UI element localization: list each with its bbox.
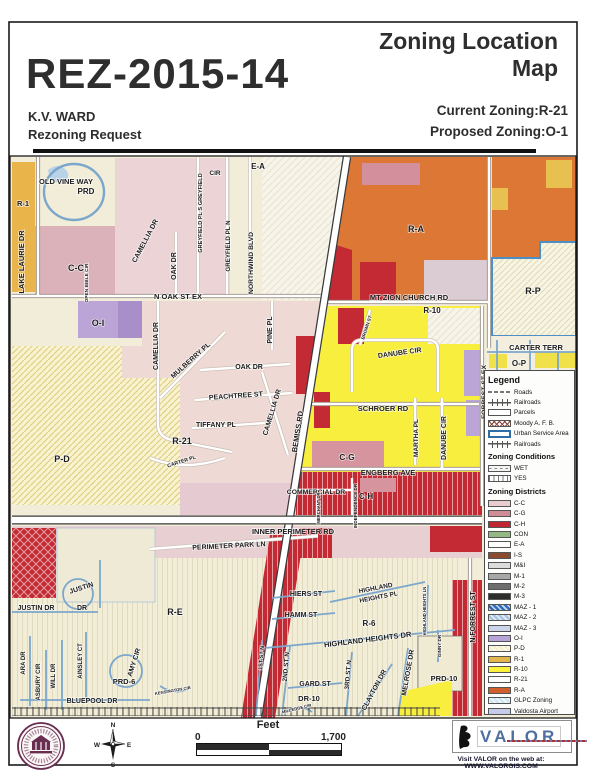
street-label: DR (77, 605, 87, 612)
legend-item-label: C-C (514, 500, 525, 507)
street-label: OAK DR (171, 252, 178, 280)
request-type: Rezoning Request (28, 126, 141, 144)
street-label: WILL DR (51, 663, 57, 689)
legend-item: Roads (488, 387, 572, 397)
compass-west-label: W (94, 742, 101, 749)
street-label: CAMELLIA DR (153, 322, 160, 370)
zone-area-label: R-10 (423, 306, 441, 315)
compass-rose-icon: N S W E (94, 722, 132, 769)
region-pink-west (180, 483, 296, 515)
legend-swatch (488, 531, 511, 538)
street-label: GREYFIELD PL S GREYFIELD (198, 173, 204, 252)
legend-swatch (488, 676, 511, 683)
street-label: SCHROER RD (358, 404, 409, 413)
legend-swatch (488, 500, 511, 507)
legend-district-item: C-H (488, 519, 572, 529)
legend-condition-item: WET (488, 463, 572, 473)
legend-district-item: CON (488, 529, 572, 539)
zone-area-label: P-D (54, 454, 70, 464)
region-yellow-patch2 (492, 188, 508, 210)
legend-item-label: WET (514, 465, 528, 472)
valor-wordmark: VALOR (477, 726, 561, 747)
legend-districts-title: Zoning Districts (488, 487, 572, 496)
legend-swatch (488, 697, 511, 704)
zoning-info-block: Current Zoning:R-21 Proposed Zoning:O-1 (370, 101, 568, 143)
county-seal-icon (18, 723, 64, 769)
legend-item-label: Roads (514, 389, 532, 396)
street-label: OAK DR (235, 364, 263, 371)
region-o-i-dark (118, 301, 142, 338)
zone-area-label: C-H (359, 492, 373, 501)
zone-area-label: E-A (251, 162, 265, 171)
legend-item: Urban Service Area (488, 429, 572, 439)
region-c-h-e2 (314, 392, 330, 428)
street-label: BLUEPOOL DR (67, 698, 118, 705)
compass-east-label: E (127, 742, 132, 749)
legend-item: Railroads (488, 439, 572, 449)
legend-item-label: O-I (514, 635, 523, 642)
legend-condition-item: YES (488, 474, 572, 484)
legend-item-label: P-D (514, 645, 525, 652)
street-label: NORTHWIND BLVD (248, 232, 255, 294)
legend-item-label: GLPC Zoning (514, 697, 552, 704)
region-wet (12, 528, 56, 598)
scale-unit-label: Feet (190, 719, 346, 731)
street-label: PINE PL (267, 316, 274, 344)
street-label: CARTER TERR (509, 343, 563, 352)
legend-item-label: Valdosta Airport (514, 708, 558, 715)
street-label: TIFFANY PL (196, 422, 237, 429)
legend-item-label: R-10 (514, 666, 528, 673)
legend-item-label: C-H (514, 521, 525, 528)
region-c-h-s (430, 526, 482, 552)
scale-cell (269, 750, 341, 756)
street-label: MERCHANT DR (316, 492, 321, 523)
legend-item-label: M-2 (514, 583, 525, 590)
legend-district-item: C-C (488, 498, 572, 508)
zone-area-label: O-I (92, 318, 105, 328)
legend-district-item: R-1 (488, 654, 572, 664)
legend-item-label: E-A (514, 541, 525, 548)
legend-item-label: MAZ - 1 (514, 604, 536, 611)
legend-district-item: MAZ - 3 (488, 623, 572, 633)
street-label: HAMM ST (285, 612, 318, 619)
legend-swatch (488, 409, 511, 416)
street-label: AINSLEY CT (78, 643, 84, 679)
compass-north-label: N (111, 722, 116, 729)
street-label: HIERS ST (290, 591, 323, 598)
legend-swatch (488, 552, 511, 559)
legend-item: Moody A. F. B. (488, 418, 572, 428)
legend-swatch (488, 510, 511, 517)
scanned-zoning-map-page: OLD VINE WAYLAKE LAURIE DROPEN BIBLE CIR… (0, 0, 600, 776)
zone-area-label: R-21 (172, 436, 192, 446)
zone-area-label: R-6 (363, 619, 376, 628)
zone-area-label: C-G (339, 452, 355, 462)
valor-glyph-icon (457, 724, 473, 750)
street-label: INNER PERIMETER RD (252, 527, 335, 536)
street-label: OLD VINE WAY (39, 177, 93, 186)
legend-swatch (488, 593, 511, 600)
legend-item-label: C-G (514, 510, 526, 517)
region-c-g-patch (360, 478, 396, 492)
street-label: GREYFIELD PL N (225, 220, 232, 272)
scale-numbers: 0 1,700 (190, 731, 346, 743)
street-label: MT ZION CHURCH RD (370, 293, 449, 302)
street-label: CIR (209, 170, 221, 177)
case-number: REZ-2015-14 (26, 50, 289, 98)
street-label: OPEN BIBLE CIR (84, 263, 90, 302)
zone-area-label: C-C (68, 263, 84, 273)
legend-title: Legend (488, 375, 572, 385)
street-label: ENGBERG AVE (361, 468, 416, 477)
street-label: N FORREST ST (470, 591, 477, 643)
legend-swatch (488, 625, 511, 632)
legend-item-label: YES (514, 475, 527, 482)
compass-south-label: S (111, 762, 116, 769)
applicant-name: K.V. WARD (28, 108, 141, 126)
region-c-c (35, 226, 115, 296)
legend-district-item: Valdosta Airport (488, 706, 572, 716)
legend-item-label: CON (514, 531, 528, 538)
legend-swatch (488, 562, 511, 569)
legend-district-item: M-3 (488, 592, 572, 602)
legend-district-item: I-S (488, 550, 572, 560)
legend-item-label: M-3 (514, 593, 525, 600)
legend-district-item: E-A (488, 540, 572, 550)
legend-swatch (488, 656, 511, 663)
zone-area-label: R-E (167, 607, 183, 617)
legend-swatch (488, 708, 511, 715)
map-legend: Legend Roads Railroads Parcels Moody A. … (484, 370, 575, 715)
street-label: MARTHA PL (413, 419, 420, 457)
legend-item-label: M&I (514, 562, 525, 569)
street-label: N OAK ST EX (154, 292, 202, 301)
region-pink-patch (362, 163, 420, 185)
street-label: LAKE LAURIE DR (17, 230, 26, 294)
legend-swatch (488, 430, 511, 438)
street-label: GARD ST (299, 681, 331, 688)
valor-web-address: Visit VALOR on the web at: WWW.VALORGIS.… (428, 756, 574, 770)
legend-conditions-title: Zoning Conditions (488, 452, 572, 461)
legend-swatch (488, 635, 511, 642)
legend-district-item: C-G (488, 509, 572, 519)
zone-area-label: R-P (525, 286, 541, 296)
legend-swatch (488, 583, 511, 590)
legend-item-label: R-A (514, 687, 525, 694)
zone-area-label: R-A (408, 224, 424, 234)
legend-district-item: R-A (488, 685, 572, 695)
legend-district-item: R-10 (488, 664, 572, 674)
legend-swatch (488, 687, 511, 694)
zone-area-label: O-P (512, 359, 527, 368)
page-title: Zoning Location Map (330, 28, 558, 82)
legend-district-item: MAZ - 1 (488, 602, 572, 612)
zone-area-label: DR-10 (298, 694, 320, 703)
legend-district-item: GLPC Zoning (488, 696, 572, 706)
legend-district-item: P-D (488, 644, 572, 654)
legend-item-label: Urban Service Area (514, 430, 569, 437)
street-label: GINNY DR (437, 634, 442, 657)
legend-item-label: M-1 (514, 573, 525, 580)
legend-swatch (488, 399, 511, 406)
legend-swatch (488, 541, 511, 548)
legend-item: Railroads (488, 397, 572, 407)
valor-tagline-line (507, 740, 587, 743)
scale-bar-block: Feet 0 1,700 (190, 719, 346, 756)
legend-swatch (488, 645, 511, 652)
scale-cell (197, 750, 269, 756)
scale-start: 0 (195, 732, 201, 743)
legend-district-item: MAZ - 2 (488, 612, 572, 622)
legend-district-item: M&I (488, 560, 572, 570)
legend-swatch (488, 391, 511, 393)
street-label: DANUBE CIR (441, 416, 448, 460)
region-carter-yellow (489, 354, 507, 368)
scale-end: 1,700 (321, 732, 346, 743)
legend-item: Parcels (488, 408, 572, 418)
legend-swatch (488, 614, 511, 621)
legend-item-label: MAZ - 2 (514, 614, 536, 621)
legend-swatch (488, 465, 511, 472)
street-label: ASBURY CIR (36, 663, 42, 701)
legend-district-item: M-2 (488, 581, 572, 591)
scale-bar (196, 743, 342, 756)
proposed-zoning: Proposed Zoning:O-1 (370, 122, 568, 143)
legend-item-label: Parcels (514, 409, 535, 416)
region-carter-yellow2 (535, 352, 576, 368)
zone-area-label: PRD-10 (431, 674, 458, 683)
valor-logo: VALOR (452, 720, 572, 753)
legend-item-label: I-S (514, 552, 522, 559)
legend-item-label: R-1 (514, 656, 524, 663)
region-o-i-e (464, 350, 480, 396)
street-label: JUSTIN DR (18, 605, 55, 612)
legend-swatch (488, 521, 511, 528)
legend-district-item: R-21 (488, 675, 572, 685)
legend-item-label: R-21 (514, 676, 528, 683)
street-label: ARA DR (21, 651, 27, 675)
legend-swatch (488, 420, 511, 427)
railroad (12, 707, 440, 716)
street-label: HIGHLAND HEIGHTS LN (422, 587, 427, 636)
zone-area-label: PRD (78, 187, 95, 196)
legend-swatch (488, 475, 511, 482)
legend-item-label: MAZ - 3 (514, 625, 536, 632)
legend-item-label: Moody A. F. B. (514, 420, 555, 427)
zone-area-label: R-1 (17, 199, 29, 208)
legend-item-label: Railroads (514, 399, 541, 406)
legend-swatch (488, 604, 511, 611)
legend-district-item: M-1 (488, 571, 572, 581)
legend-district-item: O-I (488, 633, 572, 643)
legend-swatch (488, 573, 511, 580)
region-yellow-patch (546, 160, 572, 188)
legend-swatch (488, 441, 511, 448)
applicant-block: K.V. WARD Rezoning Request (28, 108, 141, 144)
street-label: INDEPENDENCE DR (353, 483, 358, 528)
zone-area-label: PRD-6 (113, 677, 136, 686)
legend-item-label: Railroads (514, 441, 541, 448)
legend-swatch (488, 666, 511, 673)
current-zoning: Current Zoning:R-21 (370, 101, 568, 122)
